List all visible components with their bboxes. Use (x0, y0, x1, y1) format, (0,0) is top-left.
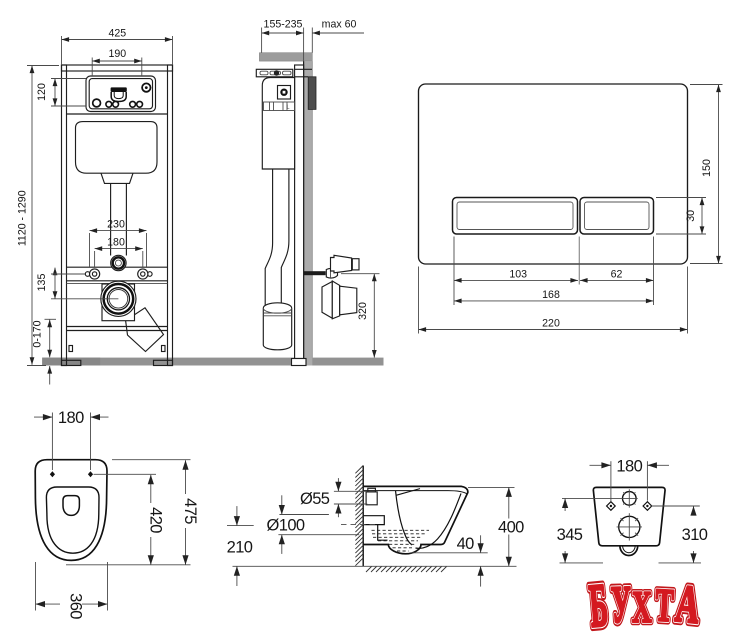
svg-text:135: 135 (36, 274, 48, 292)
svg-text:180: 180 (58, 409, 84, 427)
svg-text:310: 310 (682, 526, 708, 544)
svg-text:425: 425 (108, 28, 126, 40)
svg-text:220: 220 (542, 318, 560, 330)
svg-text:40: 40 (457, 535, 475, 553)
svg-text:168: 168 (542, 289, 560, 301)
svg-text:230: 230 (107, 219, 125, 231)
svg-text:30: 30 (685, 210, 697, 222)
svg-text:360: 360 (66, 593, 84, 619)
svg-text:345: 345 (557, 526, 583, 544)
svg-text:475: 475 (181, 498, 199, 524)
svg-text:120: 120 (36, 83, 48, 101)
svg-text:62: 62 (611, 269, 623, 281)
svg-text:Ø55: Ø55 (300, 490, 330, 508)
svg-text:400: 400 (498, 519, 524, 537)
svg-text:155-235: 155-235 (264, 19, 303, 31)
svg-text:1120 - 1290: 1120 - 1290 (17, 190, 29, 246)
svg-text:180: 180 (616, 458, 642, 476)
svg-text:190: 190 (108, 48, 126, 60)
svg-text:420: 420 (146, 507, 164, 533)
svg-text:180: 180 (107, 237, 125, 249)
svg-text:103: 103 (509, 269, 527, 281)
svg-text:210: 210 (227, 539, 253, 557)
svg-text:320: 320 (357, 302, 369, 320)
svg-text:150: 150 (701, 159, 713, 177)
svg-text:0-170: 0-170 (32, 320, 44, 347)
svg-text:max 60: max 60 (322, 19, 357, 31)
svg-text:L: L (287, 104, 290, 110)
svg-text:Ø100: Ø100 (267, 517, 305, 535)
